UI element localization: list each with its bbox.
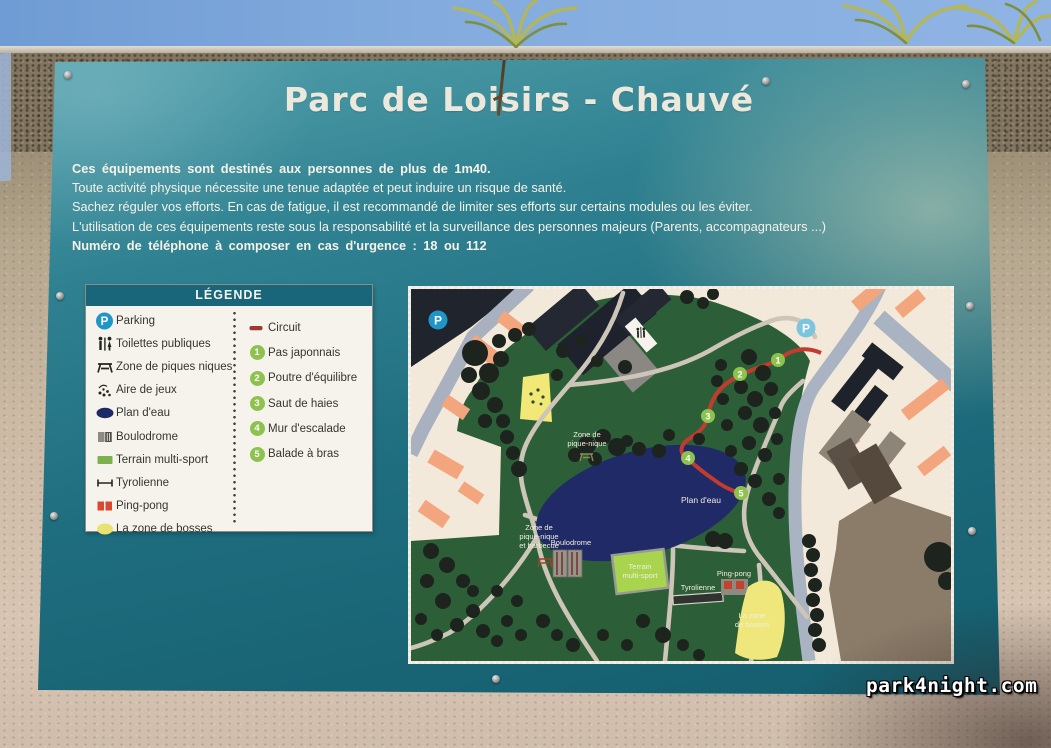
svg-text:multi-sport: multi-sport (622, 571, 658, 580)
screw (492, 675, 500, 683)
screw (50, 512, 58, 520)
svg-text:de bosses: de bosses (735, 620, 769, 629)
svg-text:Boulodrome: Boulodrome (551, 538, 591, 547)
emergency-phone-line: Numéro de téléphone à composer en cas d'… (72, 236, 790, 255)
legend-item-3: 3 Saut de haies (246, 391, 366, 416)
legend-item-circuit: Circuit (246, 315, 366, 340)
svg-text:1: 1 (775, 356, 780, 366)
legend-label: Zone de piques niques (116, 361, 232, 373)
legend-item-playground: Aire de jeux (94, 379, 230, 402)
svg-text:Plan d'eau: Plan d'eau (681, 495, 721, 505)
boulodrome-icon (94, 428, 116, 446)
legend-label: Balade à bras (268, 448, 339, 460)
badge-4-icon: 4 (246, 421, 268, 436)
parking-marker-left: P (429, 311, 448, 330)
svg-text:5: 5 (738, 489, 743, 499)
pond-icon (94, 404, 116, 422)
svg-text:P: P (434, 314, 442, 328)
legend-label: Boulodrome (116, 431, 178, 443)
palm-trees-icon (778, 0, 1051, 44)
svg-text:3: 3 (705, 412, 710, 422)
photo-of-park-sign: Parc de Loisirs - Chauvé Ces équipements… (0, 0, 1051, 748)
screw (56, 292, 64, 300)
legend-item-boulodrome: Boulodrome (94, 425, 230, 448)
legend-label: Circuit (268, 322, 301, 334)
sky-sliver (0, 53, 11, 182)
svg-text:4: 4 (685, 454, 690, 464)
legend-label: Poutre d'équilibre (268, 372, 357, 384)
svg-text:P: P (802, 322, 810, 336)
legend-item-4: 4 Mur d'escalade (246, 416, 366, 441)
legend-label: Mur d'escalade (268, 423, 346, 435)
zipline-icon (94, 474, 116, 492)
screw (762, 77, 770, 85)
safety-line: L'utilisation de ces équipements reste s… (72, 217, 790, 236)
badge-5-icon: 5 (246, 447, 268, 462)
legend-label: Parking (116, 315, 155, 327)
legend-label: La zone de bosses (116, 523, 213, 535)
svg-text:Ping-pong: Ping-pong (717, 569, 751, 578)
circuit-icon (246, 319, 268, 337)
svg-text:La zone: La zone (739, 611, 766, 620)
legend-item-5: 5 Balade à bras (246, 441, 366, 466)
legend-label: Ping-pong (116, 500, 168, 512)
multisport-icon (94, 451, 116, 469)
svg-text:Tyrolienne: Tyrolienne (681, 583, 716, 592)
legend-item-picnic: Zone de piques niques (94, 355, 230, 378)
screw (968, 527, 976, 535)
watermark: park4night.com (866, 674, 1037, 697)
legend-item-pond: Plan d'eau (94, 402, 230, 425)
legend-label: Terrain multi-sport (116, 454, 208, 466)
pingpong-tables (721, 579, 748, 595)
legend-item-2: 2 Poutre d'équilibre (246, 366, 366, 391)
sign-title: Parc de Loisirs - Chauvé (38, 80, 1000, 119)
badge-3-icon: 3 (246, 396, 268, 411)
parking-marker-right: P (797, 319, 816, 338)
legend-divider (233, 310, 236, 524)
wall-shadow (771, 598, 1051, 748)
legend-item-zipline: Tyrolienne (94, 471, 230, 494)
screw (966, 302, 974, 310)
legend-label: Saut de haies (268, 398, 338, 410)
safety-line: Sachez réguler vos efforts. En cas de fa… (72, 197, 790, 216)
svg-text:Zone de: Zone de (525, 523, 553, 532)
legend-item-pingpong: Ping-pong (94, 495, 230, 518)
parking-icon: P (94, 312, 116, 330)
svg-text:P: P (101, 316, 109, 328)
safety-line: Toute activité physique nécessite une te… (72, 178, 790, 197)
pingpong-icon (94, 497, 116, 515)
screw (962, 80, 970, 88)
legend-item-multisport: Terrain multi-sport (94, 448, 230, 471)
svg-text:2: 2 (737, 370, 742, 380)
legend-label: Tyrolienne (116, 477, 169, 489)
picnic-table-icon (94, 358, 116, 376)
legend-column-right: Circuit 1 Pas japonnais 2 Poutre d'équil… (246, 306, 366, 467)
bumps-zone-icon (94, 520, 116, 538)
legend-item-1: 1 Pas japonnais (246, 340, 366, 365)
legend-body: P Parking Toilettes publiques (86, 306, 372, 530)
svg-text:pique-nique: pique-nique (567, 439, 606, 448)
svg-text:Terrain: Terrain (629, 562, 652, 571)
screw (64, 71, 72, 79)
legend-column-left: P Parking Toilettes publiques (94, 306, 230, 541)
legend-item-bumps: La zone de bosses (94, 518, 230, 541)
safety-text: Ces équipements sont destinés aux person… (72, 159, 790, 255)
toilets-icon (94, 335, 116, 353)
palm-tree-icon (436, 0, 596, 48)
legend-label: Toilettes publiques (116, 338, 211, 350)
legend-label: Plan d'eau (116, 407, 170, 419)
badge-1-icon: 1 (246, 345, 268, 360)
legend-title: LÉGENDE (86, 285, 372, 306)
safety-line: Ces équipements sont destinés aux person… (72, 159, 790, 178)
playground-icon (94, 381, 116, 399)
legend-label: Pas japonnais (268, 347, 340, 359)
legend-item-toilets: Toilettes publiques (94, 332, 230, 355)
svg-text:Zone de: Zone de (573, 430, 601, 439)
badge-2-icon: 2 (246, 371, 268, 386)
legend-label: Aire de jeux (116, 384, 177, 396)
legend-box: LÉGENDE P Parking Toilettes publique (85, 284, 373, 532)
legend-item-parking: P Parking (94, 309, 230, 332)
